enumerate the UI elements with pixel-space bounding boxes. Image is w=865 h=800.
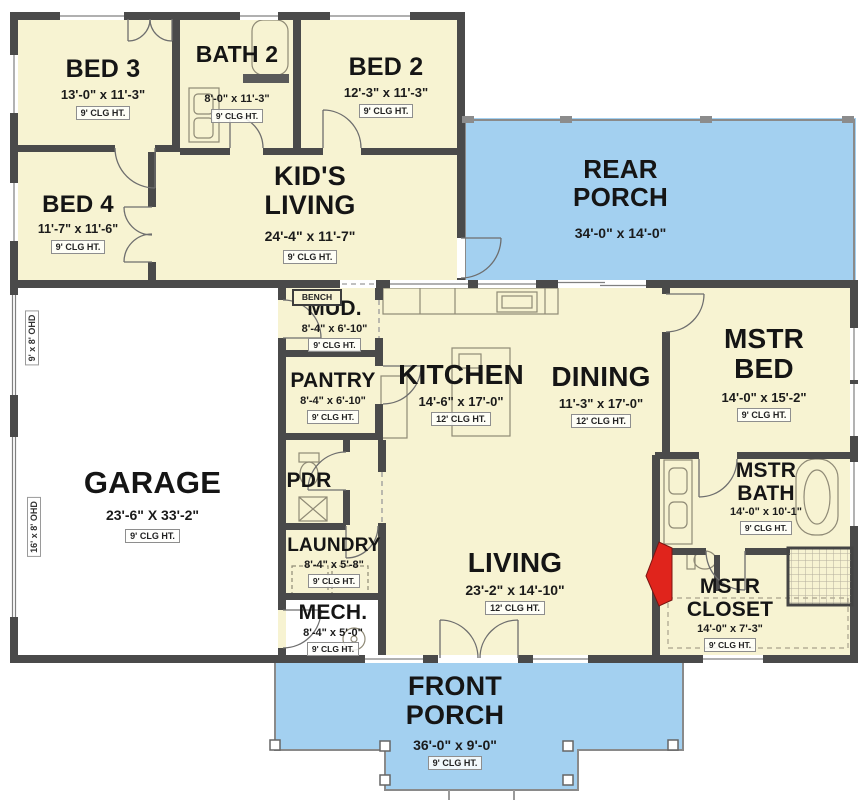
room-label-mstr-closet: MSTR CLOSET 14'-0" x 7'-3" 9' CLG HT. (665, 576, 795, 653)
room-name: MSTR BED (694, 324, 834, 384)
ceiling-height: 9' CLG HT. (125, 529, 180, 543)
ceiling-height: 9' CLG HT. (737, 408, 792, 422)
ceiling-height: 12' CLG HT. (571, 414, 631, 428)
room-name: BATH 2 (178, 42, 296, 67)
room-dims: 14'-0" x 10'-1" (708, 506, 824, 518)
room-dims: 14'-0" x 15'-2" (694, 390, 834, 405)
room-name: BED 4 (12, 192, 144, 218)
room-name: PANTRY (283, 370, 383, 393)
room-dims: 24'-4" x 11'-7" (235, 228, 385, 244)
ceiling-height: 9' CLG HT. (76, 106, 131, 120)
room-name: DINING (526, 362, 676, 392)
room-dims: 36'-0" x 9'-0" (385, 737, 525, 753)
room-label-front-porch: FRONT PORCH 36'-0" x 9'-0" 9' CLG HT. (385, 672, 525, 771)
ceiling-height: 9' CLG HT. (211, 109, 263, 123)
room-dims: 23'-6" X 33'-2" (65, 507, 240, 523)
room-label-garage: GARAGE 23'-6" X 33'-2" 9' CLG HT. (65, 466, 240, 544)
ceiling-height: 12' CLG HT. (431, 412, 491, 426)
room-name: PDR (282, 470, 336, 493)
room-name: BED 3 (28, 56, 178, 83)
room-label-pdr: PDR (282, 470, 336, 493)
room-label-mud: MUD. 8'-4" x 6'-10" 9' CLG HT. (286, 298, 383, 353)
room-label-rear-porch: REAR PORCH 34'-0" x 14'-0" (553, 155, 688, 241)
room-name: MSTR BATH (708, 460, 824, 505)
ceiling-height: 9' CLG HT. (307, 410, 359, 424)
room-dims: 8'-4" x 6'-10" (283, 395, 383, 407)
room-label-living: LIVING 23'-2" x 14'-10" 12' CLG HT. (430, 548, 600, 616)
room-name: BED 2 (312, 54, 460, 81)
room-name: GARAGE (65, 466, 240, 499)
room-label-mstr-bath: MSTR BATH 14'-0" x 10'-1" 9' CLG HT. (708, 460, 824, 536)
ceiling-height: 9' CLG HT. (704, 638, 756, 652)
room-label-bed4: BED 4 11'-7" x 11'-6" 9' CLG HT. (12, 192, 144, 255)
room-dims: 11'-7" x 11'-6" (12, 222, 144, 236)
room-name: MECH. (283, 602, 383, 625)
room-name: LIVING (430, 548, 600, 578)
room-label-bed3: BED 3 13'-0" x 11'-3" 9' CLG HT. (28, 56, 178, 121)
ohd-label-large: 16' x 8' OHD (27, 497, 41, 557)
ceiling-height: 9' CLG HT. (308, 338, 360, 352)
room-dims: 11'-3" x 17'-0" (526, 396, 676, 411)
room-dims: 8'-0" x 11'-3" (178, 93, 296, 105)
bench-label: BENCH (292, 289, 342, 306)
room-name: KID'S LIVING (235, 162, 385, 220)
room-label-pantry: PANTRY 8'-4" x 6'-10" 9' CLG HT. (283, 370, 383, 425)
room-label-kids-living: KID'S LIVING 24'-4" x 11'-7" 9' CLG HT. (235, 162, 385, 265)
front-steps (449, 790, 514, 800)
room-dims: 23'-2" x 14'-10" (430, 582, 600, 598)
ceiling-height: 9' CLG HT. (359, 104, 414, 118)
ceiling-height: 9' CLG HT. (740, 521, 792, 535)
room-dims: 14'-6" x 17'-0" (386, 394, 536, 409)
room-label-bed2: BED 2 12'-3" x 11'-3" 9' CLG HT. (312, 54, 460, 119)
room-label-dining: DINING 11'-3" x 17'-0" 12' CLG HT. (526, 362, 676, 429)
room-dims: 8'-4" x 5'-0" (283, 627, 383, 639)
ceiling-height: 9' CLG HT. (428, 756, 483, 770)
ceiling-height: 9' CLG HT. (51, 240, 106, 254)
floor-plan: BED 3 13'-0" x 11'-3" 9' CLG HT. BATH 2 … (0, 0, 865, 800)
room-label-bath2: BATH 2 8'-0" x 11'-3" 9' CLG HT. (178, 42, 296, 124)
room-name: LAUNDRY (283, 536, 385, 557)
room-name: REAR PORCH (553, 155, 688, 211)
room-name: MSTR CLOSET (665, 576, 795, 621)
ceiling-height: 9' CLG HT. (307, 642, 359, 656)
room-dims: 13'-0" x 11'-3" (28, 87, 178, 102)
room-label-laundry: LAUNDRY 8'-4" x 5'-8" 9' CLG HT. (283, 536, 385, 589)
room-label-mstr-bed: MSTR BED 14'-0" x 15'-2" 9' CLG HT. (694, 324, 834, 423)
room-label-kitchen: KITCHEN 14'-6" x 17'-0" 12' CLG HT. (386, 360, 536, 427)
ceiling-height: 9' CLG HT. (308, 574, 360, 588)
shower (788, 548, 852, 605)
room-dims: 12'-3" x 11'-3" (312, 85, 460, 100)
room-name: KITCHEN (386, 360, 536, 390)
room-dims: 34'-0" x 14'-0" (553, 225, 688, 241)
ceiling-height: 12' CLG HT. (485, 601, 545, 615)
room-name: FRONT PORCH (385, 672, 525, 730)
ohd-label-small: 9' x 8' OHD (25, 311, 39, 366)
room-dims: 8'-4" x 5'-8" (283, 559, 385, 571)
room-dims: 8'-4" x 6'-10" (286, 323, 383, 335)
room-dims: 14'-0" x 7'-3" (665, 623, 795, 635)
room-label-mech: MECH. 8'-4" x 5'-0" 9' CLG HT. (283, 602, 383, 657)
ceiling-height: 9' CLG HT. (283, 250, 338, 264)
